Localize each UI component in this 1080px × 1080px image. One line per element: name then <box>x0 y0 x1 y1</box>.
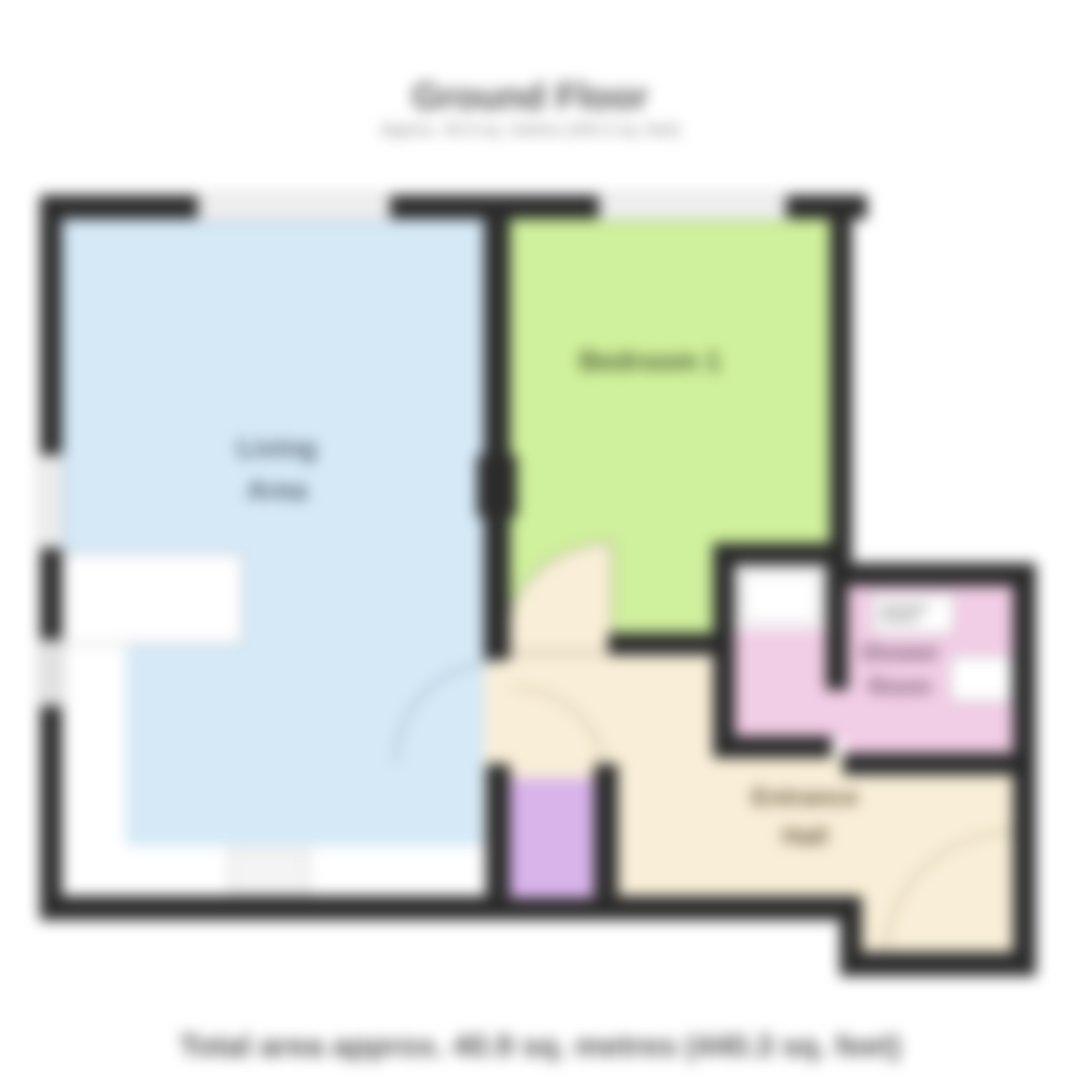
divider-wall-knob <box>477 455 517 517</box>
shower-cubicle-floor <box>735 630 828 738</box>
living-bottom-window-detail <box>230 850 308 896</box>
fireplace-recess <box>62 554 242 644</box>
shower-sink <box>950 656 1012 702</box>
top-window-living <box>198 195 390 219</box>
top-window-bedroom <box>599 195 786 219</box>
bedroom-bottom-wall <box>608 633 715 655</box>
bedroom-right-wall <box>830 215 852 565</box>
bottom-wall-right <box>840 952 1036 976</box>
left-wall-top <box>40 195 62 455</box>
living-left-recess <box>62 638 126 848</box>
shower-room-connector-floor <box>826 688 850 740</box>
room-label-bedroom-1: Bedroom 1 <box>579 341 720 383</box>
floorplan-page: Ground Floor Approx. 40.9 sq. metres (44… <box>0 0 1080 1080</box>
closet-left-stub-wall <box>486 764 510 896</box>
closet-right-stub-wall <box>594 764 618 896</box>
left-wall-bottom <box>40 706 62 920</box>
cubicle-left-wall <box>713 543 735 758</box>
shower-cupboard <box>872 594 954 634</box>
cubicle-bottom-wall <box>713 736 832 758</box>
entrance-hall-floor-right <box>845 775 1015 955</box>
left-window-upper <box>40 455 62 548</box>
divider-wall-upper <box>484 215 510 460</box>
right-outer-wall <box>1013 563 1036 976</box>
total-area-caption: Total area approx. 40.9 sq. metres (440.… <box>0 1028 1080 1064</box>
room-label-shower-room: Shower Room <box>860 636 939 704</box>
top-wall-left <box>40 195 198 219</box>
floorplan-drawing <box>0 0 1080 1080</box>
floorplan-blur-wrapper: Ground Floor Approx. 40.9 sq. metres (44… <box>0 0 1080 1080</box>
left-wall-middle <box>40 548 62 640</box>
shower-bottom-wall <box>843 753 1015 775</box>
shower-top-wall <box>843 563 1036 586</box>
divider-wall-lower <box>484 515 510 660</box>
left-window-lower <box>40 640 62 706</box>
room-label-entrance-hall: Entrance Hall <box>752 778 859 856</box>
bottom-wall-main <box>40 896 862 920</box>
hall-closet <box>510 778 594 898</box>
cubicle-top-wall <box>713 543 843 565</box>
room-label-living-area: Living Area <box>237 428 317 512</box>
top-wall-right <box>786 195 867 219</box>
cubicle-right-wall <box>826 543 848 690</box>
